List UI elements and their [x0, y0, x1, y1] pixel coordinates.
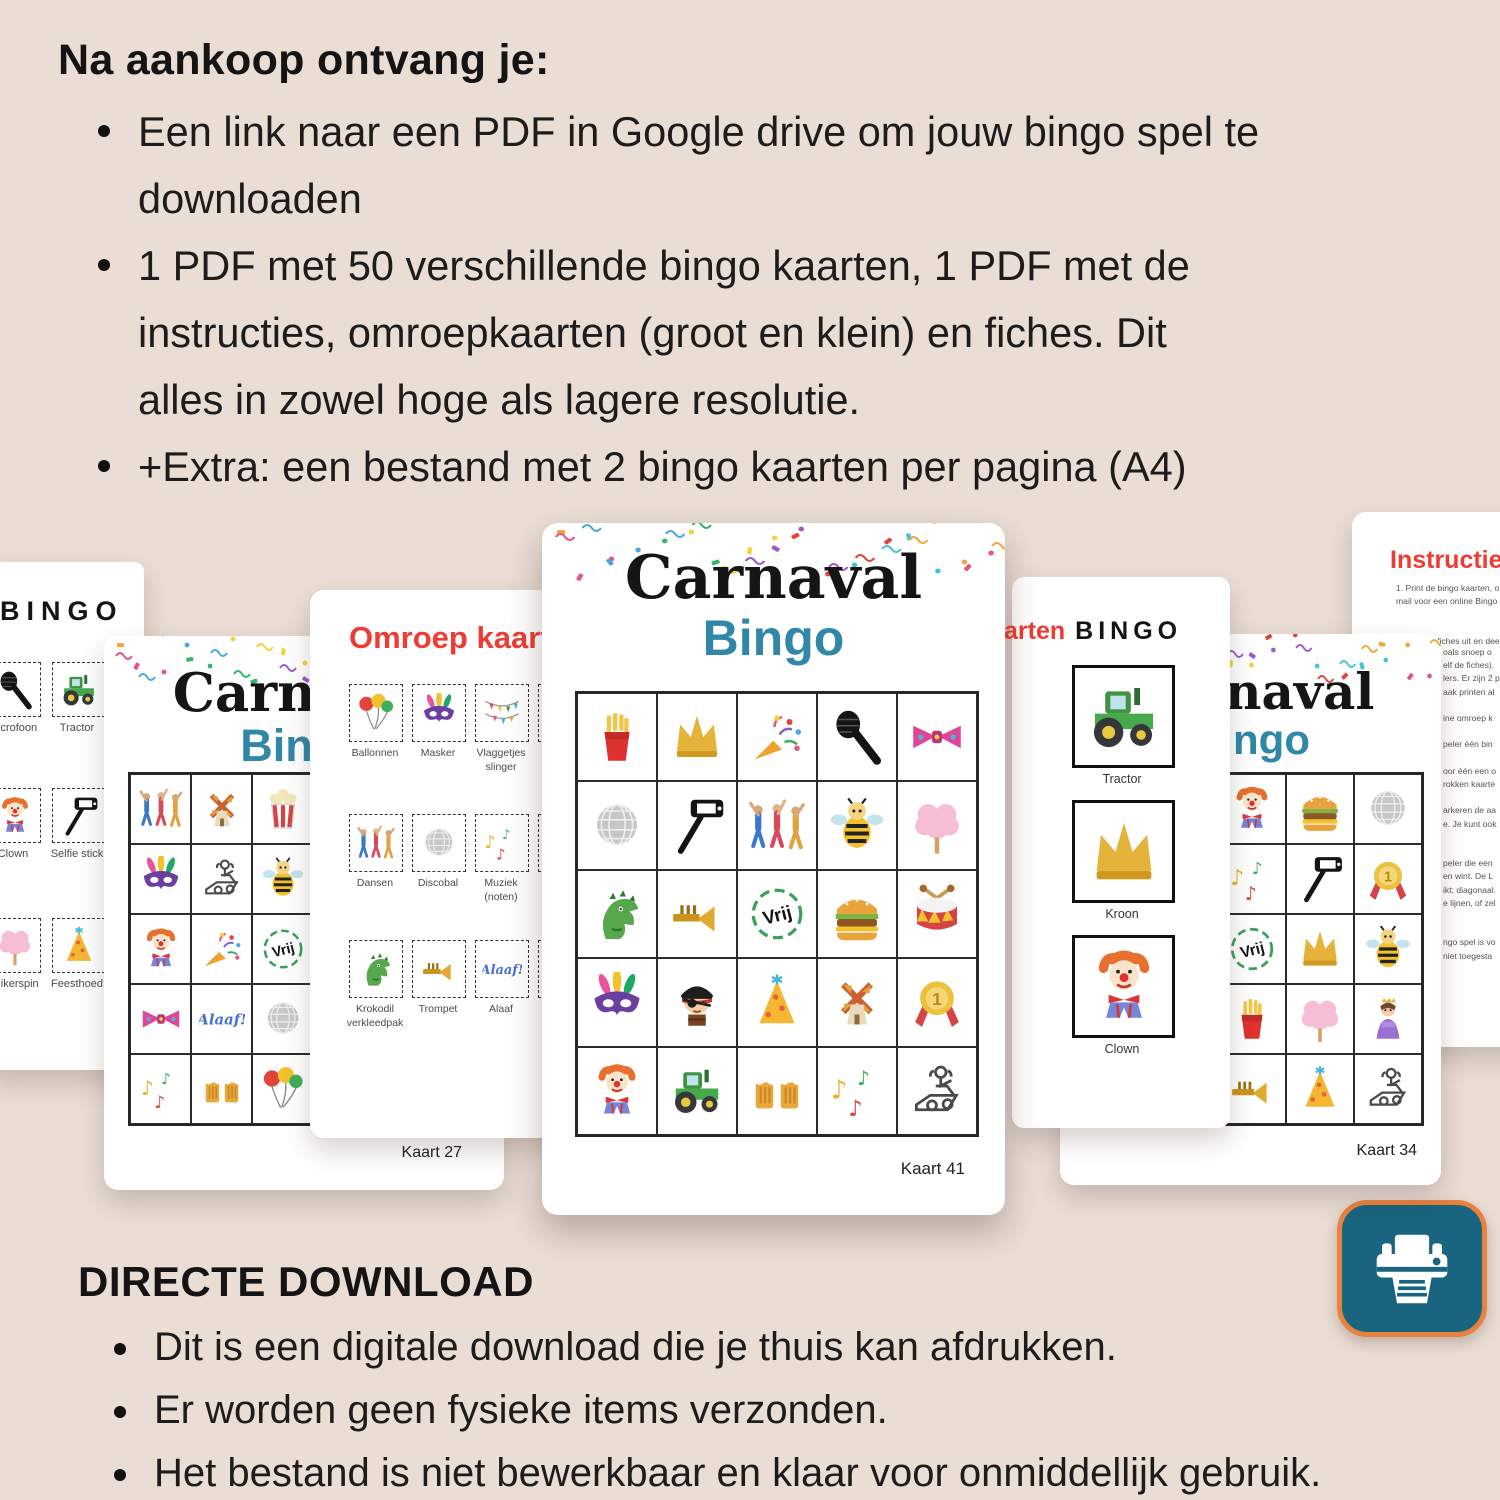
bingo-cell-dj: [1354, 1054, 1422, 1124]
bingo-cell-cottoncandy: [897, 781, 977, 869]
clown-icon: [138, 926, 184, 972]
card-d-subtitle: Bingo: [542, 609, 1005, 667]
call-box-microphone: [0, 662, 41, 717]
bingo-cell-discoball: [577, 781, 657, 869]
call-box-label: Vlaggetjes slinger: [461, 746, 541, 774]
bingo-grid: Vrij1♪♪♪: [575, 691, 979, 1137]
mask-icon: [587, 972, 647, 1032]
call-box-discoball: [412, 814, 466, 872]
vrij-icon: Vrij: [260, 926, 306, 972]
svg-text:Vrij: Vrij: [270, 940, 296, 961]
big-call-box-tractor: [1072, 665, 1175, 768]
call-box-dino: [349, 940, 403, 998]
partyhat-icon: [747, 972, 807, 1032]
bullet-item: Het bestand is niet bewerkbaar en klaar …: [112, 1442, 1492, 1500]
bingo-cell-beers: [737, 1047, 817, 1135]
bee-icon: [260, 856, 306, 902]
tractor-icon: [667, 1061, 727, 1121]
svg-text:Vrij: Vrij: [761, 901, 794, 928]
bingo-cell-medal: 1: [1354, 844, 1422, 914]
crown-icon: [667, 707, 727, 767]
bingo-cell-windmill: [817, 958, 897, 1046]
big-call-box-label: Clown: [1047, 1042, 1197, 1056]
card-a-title: BINGO: [0, 596, 124, 627]
svg-text:♪: ♪: [154, 1093, 165, 1112]
dancers-icon: [356, 823, 396, 863]
bingo-cell-windmill: [191, 774, 252, 844]
cottoncandy-icon: [0, 925, 36, 967]
bingo-cell-microphone: [817, 693, 897, 781]
svg-text:♪: ♪: [496, 846, 506, 863]
bingo-cell-bowtie: [130, 984, 191, 1054]
clown-icon: [1227, 784, 1277, 834]
svg-text:1: 1: [932, 990, 942, 1010]
bingo-cell-crown: [657, 693, 737, 781]
discoball-icon: [1363, 784, 1413, 834]
bingo-cell-bowtie: [897, 693, 977, 781]
bullet-item: +Extra: een bestand met 2 bingo kaarten …: [96, 433, 1496, 500]
bingo-cell-musicnotes: ♪♪♪: [817, 1047, 897, 1135]
musicnotes-icon: ♪♪♪: [482, 823, 522, 863]
bingo-cell-dancers: [130, 774, 191, 844]
microphone-icon: [0, 669, 36, 711]
windmill-icon: [827, 972, 887, 1032]
balloons-icon: [260, 1066, 306, 1112]
big-call-box-crown: [1072, 800, 1175, 903]
bingo-cell-clown: [577, 1047, 657, 1135]
call-box-dancers: [349, 814, 403, 872]
crown-icon: [1083, 811, 1165, 893]
trumpet-icon: [1227, 1064, 1277, 1114]
clown-icon: [0, 795, 36, 837]
musicnotes-icon: ♪♪♪: [827, 1061, 887, 1121]
clown-icon: [587, 1061, 647, 1121]
svg-text:♪: ♪: [857, 1066, 870, 1090]
musicnotes-icon: ♪♪♪: [138, 1066, 184, 1112]
alaaf-icon: Alaaf!: [482, 949, 522, 989]
instructions-text-side: oals snoep o elf de fiches). lers. Er zi…: [1443, 646, 1500, 963]
dj-icon: [1363, 1064, 1413, 1114]
bingo-cell-partyhat: [1286, 1054, 1354, 1124]
call-box-tractor: [52, 662, 105, 717]
call-box-cottoncandy: [0, 918, 41, 973]
call-box-alaaf: Alaaf!: [475, 940, 529, 998]
discoball-icon: [587, 796, 647, 856]
trumpet-icon: [667, 884, 727, 944]
card-d-title: Carnaval: [542, 543, 1005, 613]
svg-text:♪: ♪: [502, 828, 511, 843]
partyhat-icon: [58, 925, 100, 967]
bingo-cell-drum: [897, 870, 977, 958]
bingo-cell-tractor: [657, 1047, 737, 1135]
hamburger-icon: [827, 884, 887, 944]
hamburger-icon: [1295, 784, 1345, 834]
dino-icon: [587, 884, 647, 944]
bingo-cell-balloons: [252, 1054, 313, 1124]
bullet-item: Dit is een digitale download die je thui…: [112, 1316, 1492, 1379]
medal-icon: 1: [907, 972, 967, 1032]
top-heading: Na aankoop ontvang je:: [58, 36, 550, 85]
discoball-icon: [419, 823, 459, 863]
bingo-cell-princess: [1354, 984, 1422, 1054]
bingo-cell-musicnotes: ♪♪♪: [130, 1054, 191, 1124]
bingo-cell-discoball: [1354, 774, 1422, 844]
dino-icon: [356, 949, 396, 989]
svg-text:♪: ♪: [485, 833, 496, 853]
svg-text:♪: ♪: [831, 1075, 848, 1105]
call-box-label: Alaaf: [461, 1002, 541, 1016]
drum-icon: [907, 884, 967, 944]
bottom-bullet-list: Dit is een digitale download die je thui…: [112, 1316, 1492, 1500]
bottom-heading: DIRECTE DOWNLOAD: [78, 1258, 534, 1306]
bingo-cell-discoball: [252, 984, 313, 1054]
discoball-icon: [260, 996, 306, 1042]
tractor-icon: [1083, 676, 1165, 758]
bingo-cell-popper: [191, 914, 252, 984]
bingo-card-41: Carnaval Bingo Vrij1♪♪♪ Kaart 41: [542, 523, 1005, 1215]
bingo-cell-bee: [252, 844, 313, 914]
svg-text:♪: ♪: [140, 1076, 153, 1100]
bowtie-icon: [907, 707, 967, 767]
dj-icon: [199, 856, 245, 902]
selfiestick-icon: [667, 796, 727, 856]
crown-icon: [1295, 924, 1345, 974]
alaaf-icon: Alaaf!: [199, 996, 245, 1042]
bingo-cell-dancers: [737, 781, 817, 869]
bingo-cell-medal: 1: [897, 958, 977, 1046]
big-call-cards-page: artenBINGO TractorKroonClown: [1012, 577, 1230, 1128]
card-number: Kaart 34: [1357, 1142, 1417, 1160]
bingo-cell-bee: [1354, 914, 1422, 984]
flags-icon: [482, 693, 522, 733]
top-bullet-list: Een link naar een PDF in Google drive om…: [96, 98, 1496, 500]
bingo-cell-bee: [817, 781, 897, 869]
svg-text:♪: ♪: [161, 1070, 171, 1088]
bullet-item: Een link naar een PDF in Google drive om…: [96, 98, 1496, 232]
svg-text:1: 1: [1384, 870, 1392, 886]
mask-icon: [419, 693, 459, 733]
svg-text:♪: ♪: [1252, 859, 1263, 878]
bingo-cell-dj: [897, 1047, 977, 1135]
cottoncandy-icon: [907, 796, 967, 856]
bingo-cell-mask: [130, 844, 191, 914]
bingo-cell-vrij: Vrij: [737, 870, 817, 958]
bingo-cell-vrij: Vrij: [252, 914, 313, 984]
card-e-title-red: arten: [1004, 617, 1065, 645]
bingo-cell-popcorn: [252, 774, 313, 844]
svg-text:Alaaf!: Alaaf!: [482, 963, 522, 978]
bee-icon: [1363, 924, 1413, 974]
bowtie-icon: [138, 996, 184, 1042]
product-listing-image: Na aankoop ontvang je: Een link naar een…: [0, 0, 1500, 1500]
bullet-item: 1 PDF met 50 verschillende bingo kaarten…: [96, 232, 1496, 433]
beers-icon: [199, 1066, 245, 1112]
dancers-icon: [747, 796, 807, 856]
call-box-trumpet: [412, 940, 466, 998]
big-call-box-clown: [1072, 935, 1175, 1038]
dancers-icon: [138, 786, 184, 832]
balloons-icon: [356, 693, 396, 733]
bingo-cell-fries: [577, 693, 657, 781]
bingo-cell-hamburger: [1286, 774, 1354, 844]
card-number: Kaart 27: [402, 1144, 462, 1162]
bingo-cell-alaaf: Alaaf!: [191, 984, 252, 1054]
partyhat-icon: [1295, 1064, 1345, 1114]
bingo-cell-hamburger: [817, 870, 897, 958]
popper-icon: [747, 707, 807, 767]
bingo-cell-beers: [191, 1054, 252, 1124]
microphone-icon: [827, 707, 887, 767]
bingo-cell-partyhat: [737, 958, 817, 1046]
popper-icon: [199, 926, 245, 972]
clown-icon: [1083, 946, 1165, 1028]
bingo-cell-clown: [130, 914, 191, 984]
fries-icon: [587, 707, 647, 767]
bingo-cell-selfiestick: [657, 781, 737, 869]
windmill-icon: [199, 786, 245, 832]
call-box-clown: [0, 788, 41, 843]
fries-icon: [1227, 994, 1277, 1044]
bingo-cell-cottoncandy: [1286, 984, 1354, 1054]
bingo-cell-selfiestick: [1286, 844, 1354, 914]
vrij-icon: Vrij: [1227, 924, 1277, 974]
trumpet-icon: [419, 949, 459, 989]
mask-icon: [138, 856, 184, 902]
call-box-balloons: [349, 684, 403, 742]
bee-icon: [827, 796, 887, 856]
card-g-title: Instructies vo: [1390, 546, 1500, 575]
big-call-box-label: Tractor: [1047, 772, 1197, 786]
bingo-cell-dj: [191, 844, 252, 914]
call-box-flags: [475, 684, 529, 742]
call-box-partyhat: [52, 918, 105, 973]
svg-text:Alaaf!: Alaaf!: [199, 1011, 245, 1029]
printer-icon: [1337, 1200, 1487, 1337]
tractor-icon: [58, 669, 100, 711]
bullet-item: Er worden geen fysieke items verzonden.: [112, 1379, 1492, 1442]
selfiestick-icon: [1295, 854, 1345, 904]
cottoncandy-icon: [1295, 994, 1345, 1044]
call-box-label: Muziek (noten): [461, 876, 541, 904]
bingo-cell-trumpet: [657, 870, 737, 958]
pirate-icon: [667, 972, 727, 1032]
big-call-box-label: Kroon: [1047, 907, 1197, 921]
call-box-mask: [412, 684, 466, 742]
bingo-cell-crown: [1286, 914, 1354, 984]
call-box-musicnotes: ♪♪♪: [475, 814, 529, 872]
beers-icon: [747, 1061, 807, 1121]
svg-text:♪: ♪: [1230, 866, 1244, 891]
svg-text:Vrij: Vrij: [1239, 940, 1267, 962]
card-number: Kaart 41: [901, 1159, 965, 1179]
selfiestick-icon: [58, 795, 100, 837]
card-e-title-black: BINGO: [1075, 617, 1182, 645]
musicnotes-icon: ♪♪♪: [1227, 854, 1277, 904]
card-e-title: artenBINGO: [1004, 617, 1234, 646]
bingo-cell-dino: [577, 870, 657, 958]
call-box-selfiestick: [52, 788, 105, 843]
bingo-cell-mask: [577, 958, 657, 1046]
medal-icon: 1: [1363, 854, 1413, 904]
princess-icon: [1363, 994, 1413, 1044]
svg-text:♪: ♪: [848, 1096, 862, 1121]
dj-icon: [907, 1061, 967, 1121]
bingo-cell-popper: [737, 693, 817, 781]
svg-text:♪: ♪: [1245, 884, 1257, 904]
vrij-icon: Vrij: [747, 884, 807, 944]
bingo-cell-pirate: [657, 958, 737, 1046]
popcorn-icon: [260, 786, 306, 832]
